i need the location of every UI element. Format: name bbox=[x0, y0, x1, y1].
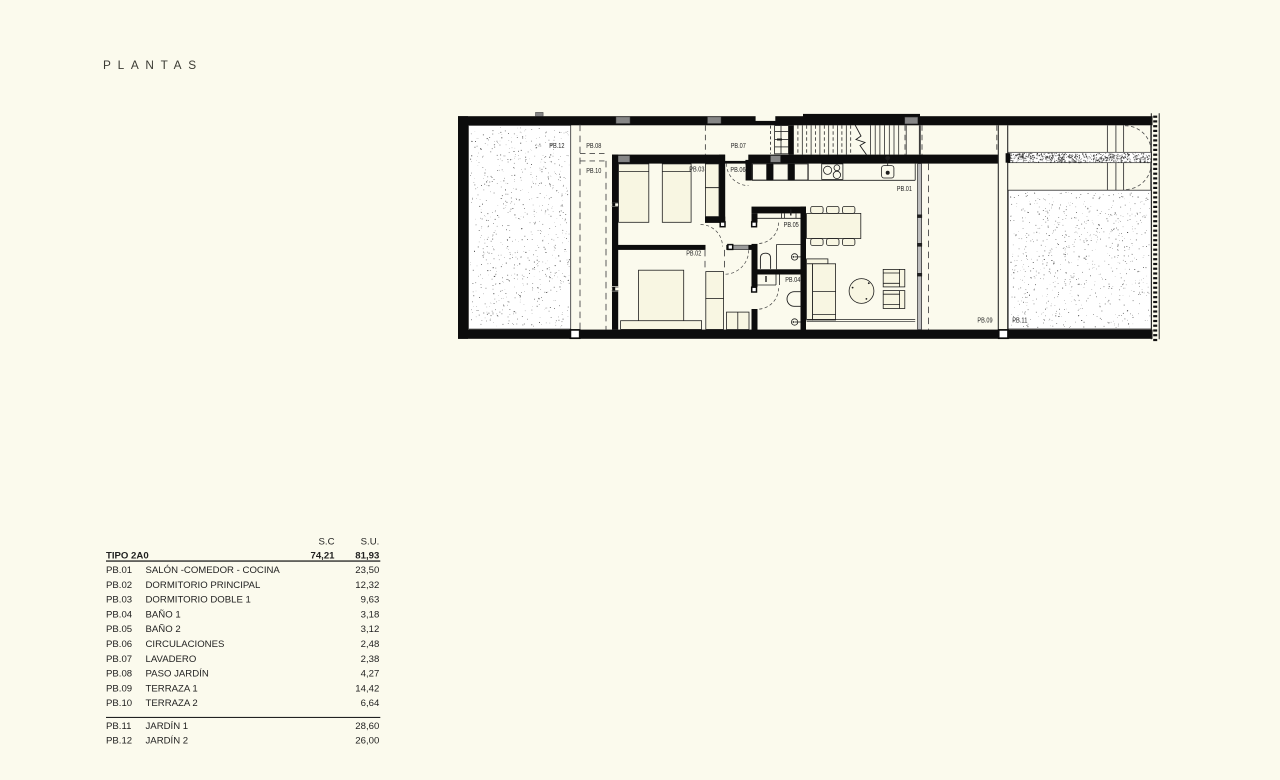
svg-text:PB.01: PB.01 bbox=[897, 186, 912, 193]
svg-text:PB.12: PB.12 bbox=[106, 736, 132, 747]
svg-text:PB.08: PB.08 bbox=[586, 143, 601, 150]
svg-text:TERRAZA 2: TERRAZA 2 bbox=[146, 698, 198, 709]
svg-text:BAÑO 1: BAÑO 1 bbox=[146, 609, 181, 620]
svg-text:PB.01: PB.01 bbox=[106, 565, 132, 576]
svg-text:PB.06: PB.06 bbox=[106, 639, 132, 650]
svg-text:PB.07: PB.07 bbox=[106, 654, 132, 665]
svg-text:2,48: 2,48 bbox=[361, 639, 380, 650]
svg-text:26,00: 26,00 bbox=[355, 736, 379, 747]
svg-text:PB.05: PB.05 bbox=[106, 624, 132, 635]
svg-text:PB.10: PB.10 bbox=[106, 698, 132, 709]
svg-text:3,18: 3,18 bbox=[361, 609, 380, 620]
svg-text:PB.09: PB.09 bbox=[977, 317, 992, 324]
svg-text:JARDÍN 1: JARDÍN 1 bbox=[146, 721, 189, 732]
svg-text:23,50: 23,50 bbox=[355, 565, 379, 576]
svg-text:S.U.: S.U. bbox=[361, 537, 380, 548]
svg-text:PB.03: PB.03 bbox=[106, 595, 132, 606]
svg-text:12,32: 12,32 bbox=[355, 580, 379, 591]
svg-text:CIRCULACIONES: CIRCULACIONES bbox=[146, 639, 225, 650]
svg-text:PASO JARDÍN: PASO JARDÍN bbox=[146, 669, 209, 680]
svg-text:2,38: 2,38 bbox=[361, 654, 380, 665]
svg-text:PB.09: PB.09 bbox=[106, 683, 132, 694]
svg-text:JARDÍN 2: JARDÍN 2 bbox=[146, 736, 189, 747]
svg-text:PB.04: PB.04 bbox=[785, 277, 800, 284]
svg-text:81,93: 81,93 bbox=[355, 551, 379, 562]
svg-text:3,12: 3,12 bbox=[361, 624, 380, 635]
svg-text:PB.06: PB.06 bbox=[730, 167, 745, 174]
svg-text:BAÑO 2: BAÑO 2 bbox=[146, 624, 181, 635]
svg-text:PB.11: PB.11 bbox=[106, 721, 131, 732]
svg-text:14,42: 14,42 bbox=[355, 683, 379, 694]
svg-text:PB.07: PB.07 bbox=[731, 143, 746, 150]
svg-text:PB.11: PB.11 bbox=[1012, 317, 1027, 324]
svg-text:PB.03: PB.03 bbox=[689, 167, 704, 174]
svg-text:PB.04: PB.04 bbox=[106, 609, 133, 620]
svg-text:28,60: 28,60 bbox=[355, 721, 379, 732]
svg-text:74,21: 74,21 bbox=[310, 551, 335, 562]
svg-text:DORMITORIO PRINCIPAL: DORMITORIO PRINCIPAL bbox=[146, 580, 261, 591]
svg-text:S.C: S.C bbox=[319, 537, 335, 548]
svg-text:PB.05: PB.05 bbox=[784, 222, 799, 229]
svg-text:TERRAZA 1: TERRAZA 1 bbox=[146, 683, 198, 694]
svg-text:PB.02: PB.02 bbox=[106, 580, 132, 591]
svg-text:PLANTAS: PLANTAS bbox=[103, 58, 203, 72]
svg-text:DORMITORIO DOBLE 1: DORMITORIO DOBLE 1 bbox=[146, 595, 251, 606]
svg-text:9,63: 9,63 bbox=[361, 595, 380, 606]
svg-text:LAVADERO: LAVADERO bbox=[146, 654, 197, 665]
svg-text:4,27: 4,27 bbox=[361, 669, 380, 680]
svg-text:PB.08: PB.08 bbox=[106, 669, 132, 680]
svg-text:6,64: 6,64 bbox=[361, 698, 380, 709]
svg-text:PB.02: PB.02 bbox=[686, 250, 701, 257]
svg-text:SALÓN -COMEDOR - COCINA: SALÓN -COMEDOR - COCINA bbox=[146, 565, 281, 576]
svg-text:PB.10: PB.10 bbox=[586, 168, 601, 175]
svg-text:PB.12: PB.12 bbox=[549, 143, 564, 150]
svg-text:TIPO 2A0: TIPO 2A0 bbox=[106, 551, 149, 562]
